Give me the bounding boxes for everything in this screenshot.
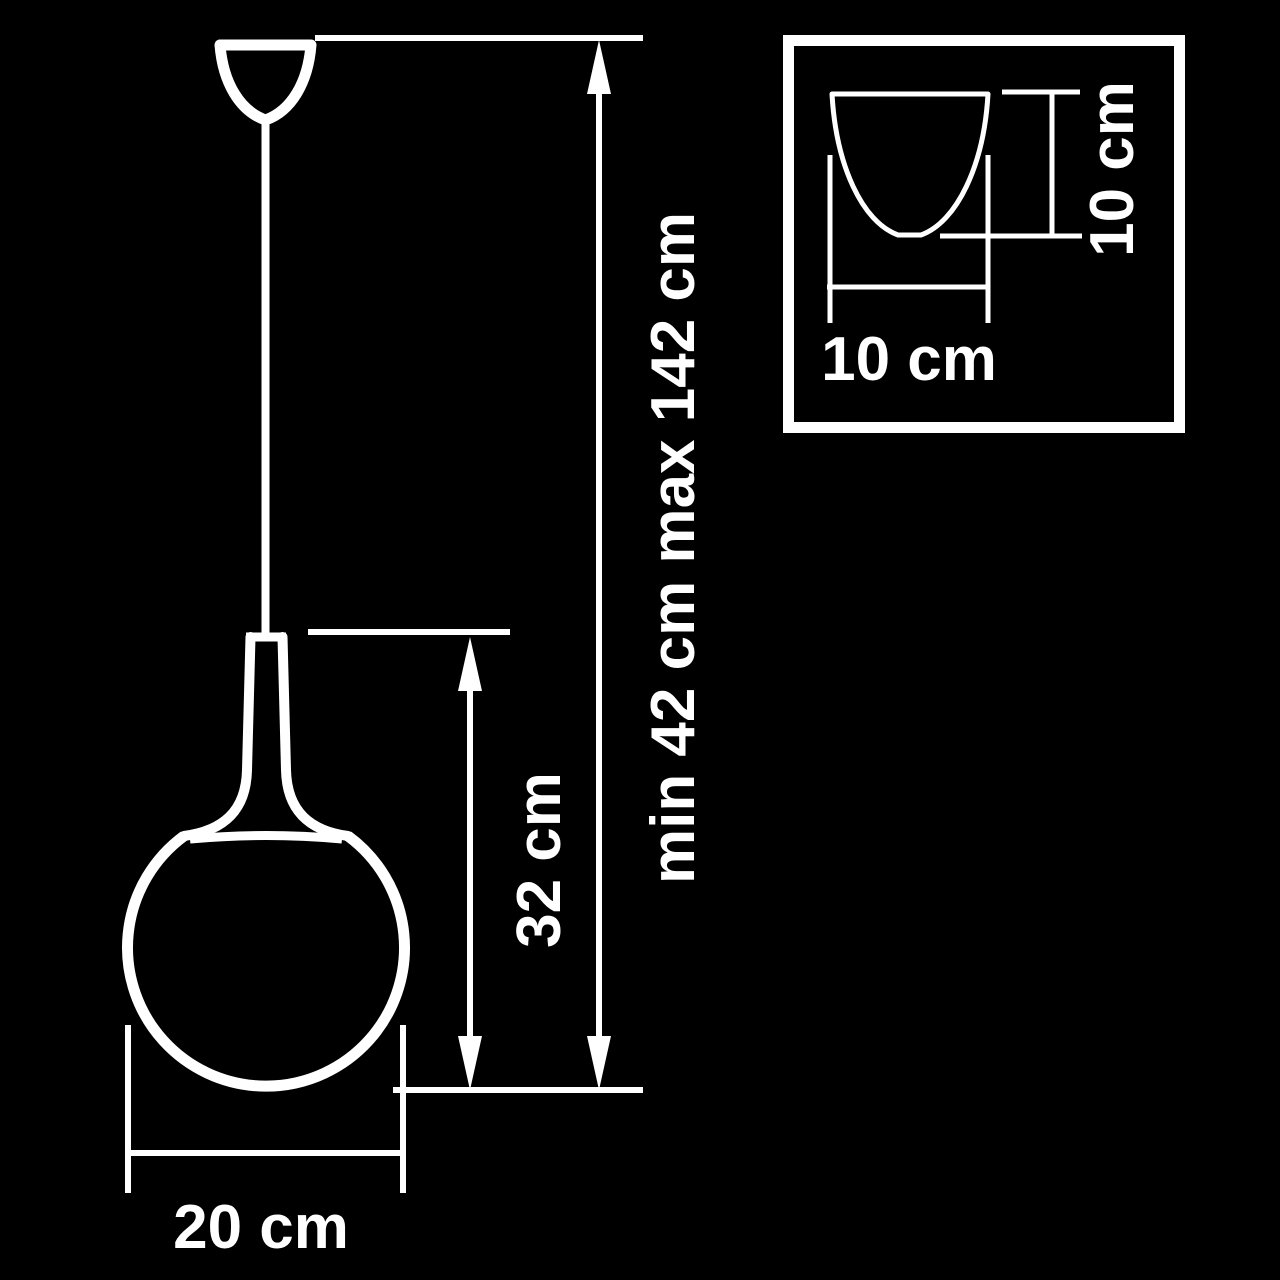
lamp-neck-right [283, 637, 349, 836]
overall-arrow-down [587, 1036, 611, 1090]
inset-width-label: 10 cm [821, 329, 997, 391]
body-arrow-up [458, 637, 482, 691]
overall-height-label: min 42 cm max 142 cm [643, 212, 705, 884]
body-arrow-down [458, 1036, 482, 1090]
diagram-canvas: min 42 cm max 142 cm 32 cm 20 cm 10 cm 1… [0, 0, 1280, 1280]
inset-shade-profile [832, 94, 988, 235]
globe-diameter-label: 20 cm [173, 1197, 349, 1259]
body-height-label: 32 cm [509, 772, 571, 948]
overall-arrow-up [587, 40, 611, 94]
globe-shoulder-line [190, 836, 342, 840]
lamp-neck-left [184, 637, 251, 836]
ceiling-canopy [220, 45, 311, 120]
lamp-globe [127, 836, 404, 1086]
inset-height-label: 10 cm [1082, 81, 1144, 257]
